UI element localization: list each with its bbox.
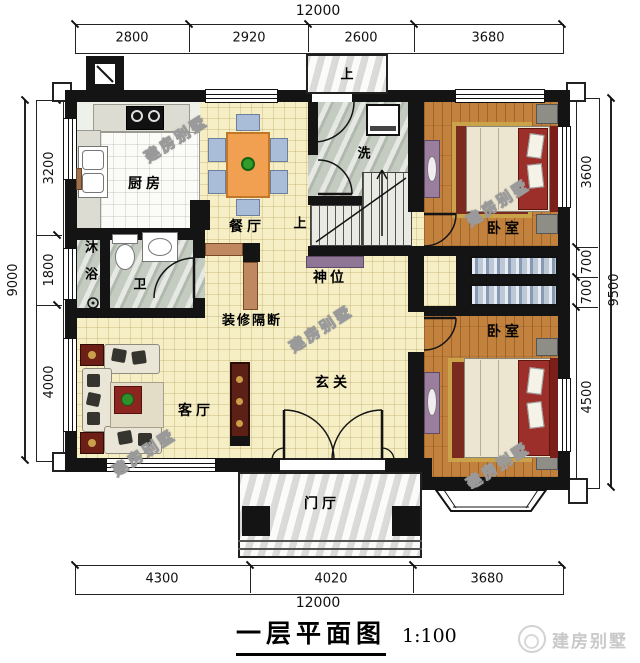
plant (121, 393, 134, 406)
quilt-fold (480, 128, 481, 210)
door-threshold (280, 458, 385, 472)
sofa-pillow (117, 430, 133, 445)
ac-unit: AC (459, 494, 491, 507)
sofa-pillow (86, 392, 101, 407)
side-table-decor (88, 351, 96, 359)
wall (308, 196, 362, 205)
wardrobe (470, 256, 558, 276)
sofa-pillow (111, 348, 127, 363)
wall (408, 102, 424, 212)
wall (456, 246, 470, 316)
dim-bottom-seg: 4020 (314, 572, 347, 587)
stairs (310, 205, 362, 246)
room-label-laundry: 洗 (357, 143, 370, 162)
window (63, 118, 77, 180)
plan-scale: 1:100 (402, 625, 457, 647)
sofa-pillow (87, 412, 100, 425)
dim-top-seg: 3680 (471, 31, 504, 46)
window (205, 89, 278, 103)
brand-text: 建房别墅 (552, 627, 628, 652)
sink-basin (82, 173, 104, 193)
wall (408, 246, 424, 312)
pillow (526, 401, 544, 429)
title-block: 一层平面图 1:100 (236, 614, 457, 656)
dim-divider (189, 24, 190, 52)
room-label-bedroom: 卧室 (487, 321, 523, 341)
dim-top-total: 12000 (296, 3, 341, 19)
chimney-flue (95, 64, 115, 84)
dim-right-seg: 3600 (580, 142, 594, 202)
washing-machine (366, 104, 400, 136)
dim-divider (414, 24, 415, 52)
dining-chair (208, 170, 226, 194)
wall (65, 308, 205, 318)
side-table-decor (88, 439, 96, 447)
wardrobe (470, 284, 558, 306)
bed-headboard (550, 126, 558, 212)
dim-left-seg: 4000 (42, 352, 56, 412)
window (455, 89, 545, 103)
brand-logo: 建房别墅 (518, 625, 628, 653)
room-label-dining: 餐厅 (229, 216, 265, 236)
dim-divider (308, 24, 309, 52)
dim-left-seg: 1800 (42, 240, 56, 300)
foyer-pillar (392, 506, 420, 536)
stove-burner (148, 110, 160, 122)
dim-top-seg: 2920 (232, 31, 265, 46)
washing-machine-panel (370, 126, 396, 131)
room-label-shower: 沐浴 (85, 235, 101, 290)
room-label-entry: 玄关 (315, 372, 351, 392)
sofa-pillow (131, 350, 147, 365)
stove-burner (131, 110, 143, 122)
plan-title: 一层平面图 (236, 614, 386, 656)
dresser-mirror (427, 156, 437, 182)
dim-left-total: 9000 (6, 250, 20, 310)
window (63, 338, 77, 432)
dining-chair (270, 138, 288, 162)
window (557, 126, 571, 208)
dim-right-seg: 4500 (580, 367, 594, 427)
brand-icon (518, 625, 546, 653)
wall (308, 246, 414, 256)
table-plant (241, 157, 255, 171)
quilt-fold (498, 360, 499, 456)
dim-divider (413, 565, 414, 593)
room-label-foyer: 门厅 (304, 493, 340, 513)
wall (193, 298, 205, 318)
toilet (115, 244, 135, 270)
stairs-up-label: 上 (340, 64, 353, 83)
wall (100, 240, 110, 308)
room-label-bedroom: 卧室 (487, 218, 523, 238)
dim-right-seg: 700 (580, 262, 594, 322)
bed-headboard (550, 358, 558, 458)
wall (424, 306, 558, 316)
pillow (526, 367, 544, 395)
dim-top-seg: 2600 (344, 31, 377, 46)
wall (193, 228, 205, 258)
tv-cabinet-base (230, 436, 250, 446)
nightstand (536, 104, 558, 124)
dim-bottom-total: 12000 (296, 595, 341, 611)
dim-top-seg: 2800 (115, 31, 148, 46)
wall (424, 246, 558, 256)
washbasin-bowl (148, 238, 172, 256)
partition (205, 243, 243, 256)
room-label-kitchen: 厨房 (128, 173, 164, 193)
room-label-living: 客厅 (178, 400, 214, 420)
window (557, 378, 571, 452)
corner-pilaster (568, 478, 588, 504)
nightstand (536, 338, 558, 356)
stairs (362, 172, 412, 246)
sink-cabinet (76, 168, 82, 190)
room-label-partition: 装修隔断 (222, 310, 282, 329)
dining-chair (270, 170, 288, 194)
partition (243, 262, 258, 310)
dining-chair (236, 199, 260, 216)
toilet-tank (112, 234, 138, 244)
sink-basin (82, 150, 104, 170)
dresser-mirror (427, 388, 437, 416)
floor-plan-page: 12000 2800 2920 2600 3680 4300 4020 3680… (0, 0, 640, 663)
partition-post (243, 243, 260, 262)
foyer-step (238, 548, 422, 550)
quilt-fold (480, 360, 481, 456)
nightstand (536, 214, 558, 234)
dim-left-seg: 3200 (42, 138, 56, 198)
window (63, 248, 77, 300)
dining-chair (236, 114, 260, 131)
foyer-pillar (242, 506, 270, 536)
wall (458, 276, 558, 284)
sofa-pillow (87, 374, 100, 387)
wall (308, 102, 318, 155)
wall (190, 200, 210, 230)
stairs-up-label: 上 (293, 213, 306, 232)
foyer-step (238, 540, 422, 542)
dim-divider (250, 565, 251, 593)
room-label-shrine: 神位 (313, 267, 347, 287)
room-label-toilet: 卫 (133, 274, 146, 293)
dim-bottom-seg: 4300 (145, 572, 178, 587)
dining-chair (208, 138, 226, 162)
wall-exterior (424, 477, 570, 490)
dim-right-total: 9500 (607, 260, 621, 320)
dim-bottom-seg: 3680 (470, 572, 503, 587)
